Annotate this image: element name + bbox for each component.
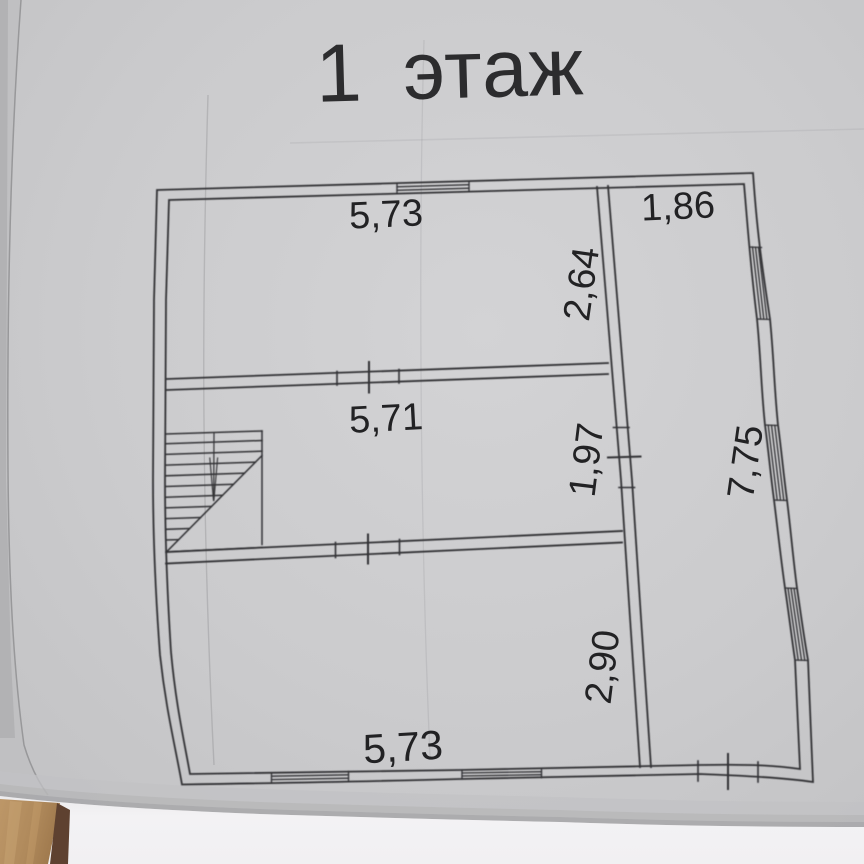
svg-text:1,97: 1,97 xyxy=(562,421,613,500)
svg-text:5,73: 5,73 xyxy=(348,192,424,237)
svg-text:5,73: 5,73 xyxy=(362,722,444,773)
svg-text:2,90: 2,90 xyxy=(578,628,629,707)
svg-text:1,86: 1,86 xyxy=(640,184,716,229)
svg-text:1 этаж: 1 этаж xyxy=(315,21,586,119)
svg-text:5,71: 5,71 xyxy=(348,396,424,442)
